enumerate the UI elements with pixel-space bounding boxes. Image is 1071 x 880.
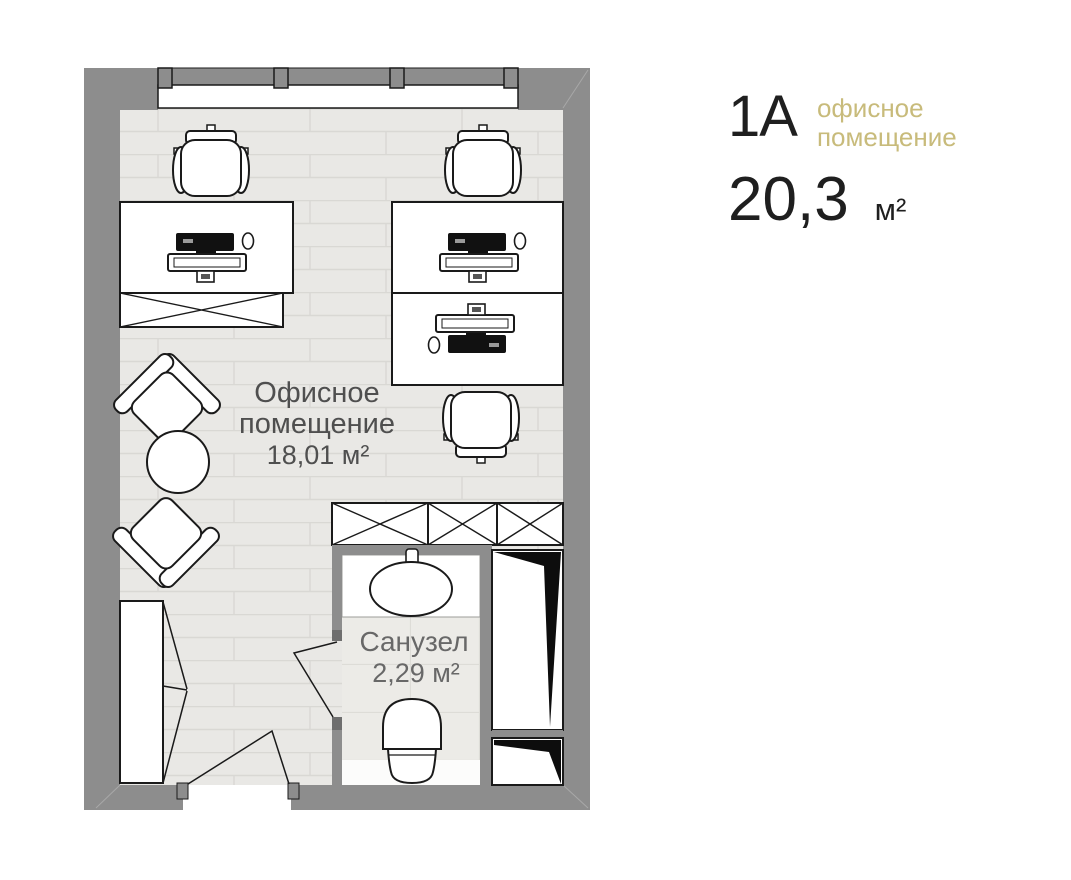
- unit-type: офисное помещение: [817, 90, 957, 151]
- x-storage-cabinet-icon: [332, 503, 563, 545]
- office-room-name-line1: Офисное: [254, 377, 379, 409]
- office-room-area: 18,01 м²: [267, 440, 370, 470]
- bathroom-name: Санузел: [359, 626, 468, 657]
- toilet-icon: [383, 699, 441, 783]
- unit-area-unit: м²: [875, 192, 907, 228]
- desk-workstation-icon: [120, 202, 293, 327]
- floorplan-page: Офисное помещение 18,01 м² Санузел 2,29 …: [0, 0, 1071, 880]
- tall-cabinet-icon: [492, 550, 563, 785]
- unit-id: 1А: [728, 90, 797, 143]
- unit-type-line1: офисное: [817, 94, 957, 123]
- unit-area-value: 20,3: [728, 169, 849, 231]
- round-coffee-table-icon: [147, 431, 209, 493]
- unit-type-line2: помещение: [817, 123, 957, 152]
- window-icon: [158, 68, 518, 108]
- unit-info-panel: 1А офисное помещение 20,3 м²: [728, 90, 1028, 231]
- bathroom-area: 2,29 м²: [372, 658, 460, 688]
- office-room-name-line2: помещение: [239, 408, 395, 440]
- unit-area: 20,3 м²: [728, 169, 1028, 231]
- desk-workstation-icon: [392, 202, 563, 385]
- unit-header: 1А офисное помещение: [728, 90, 1028, 151]
